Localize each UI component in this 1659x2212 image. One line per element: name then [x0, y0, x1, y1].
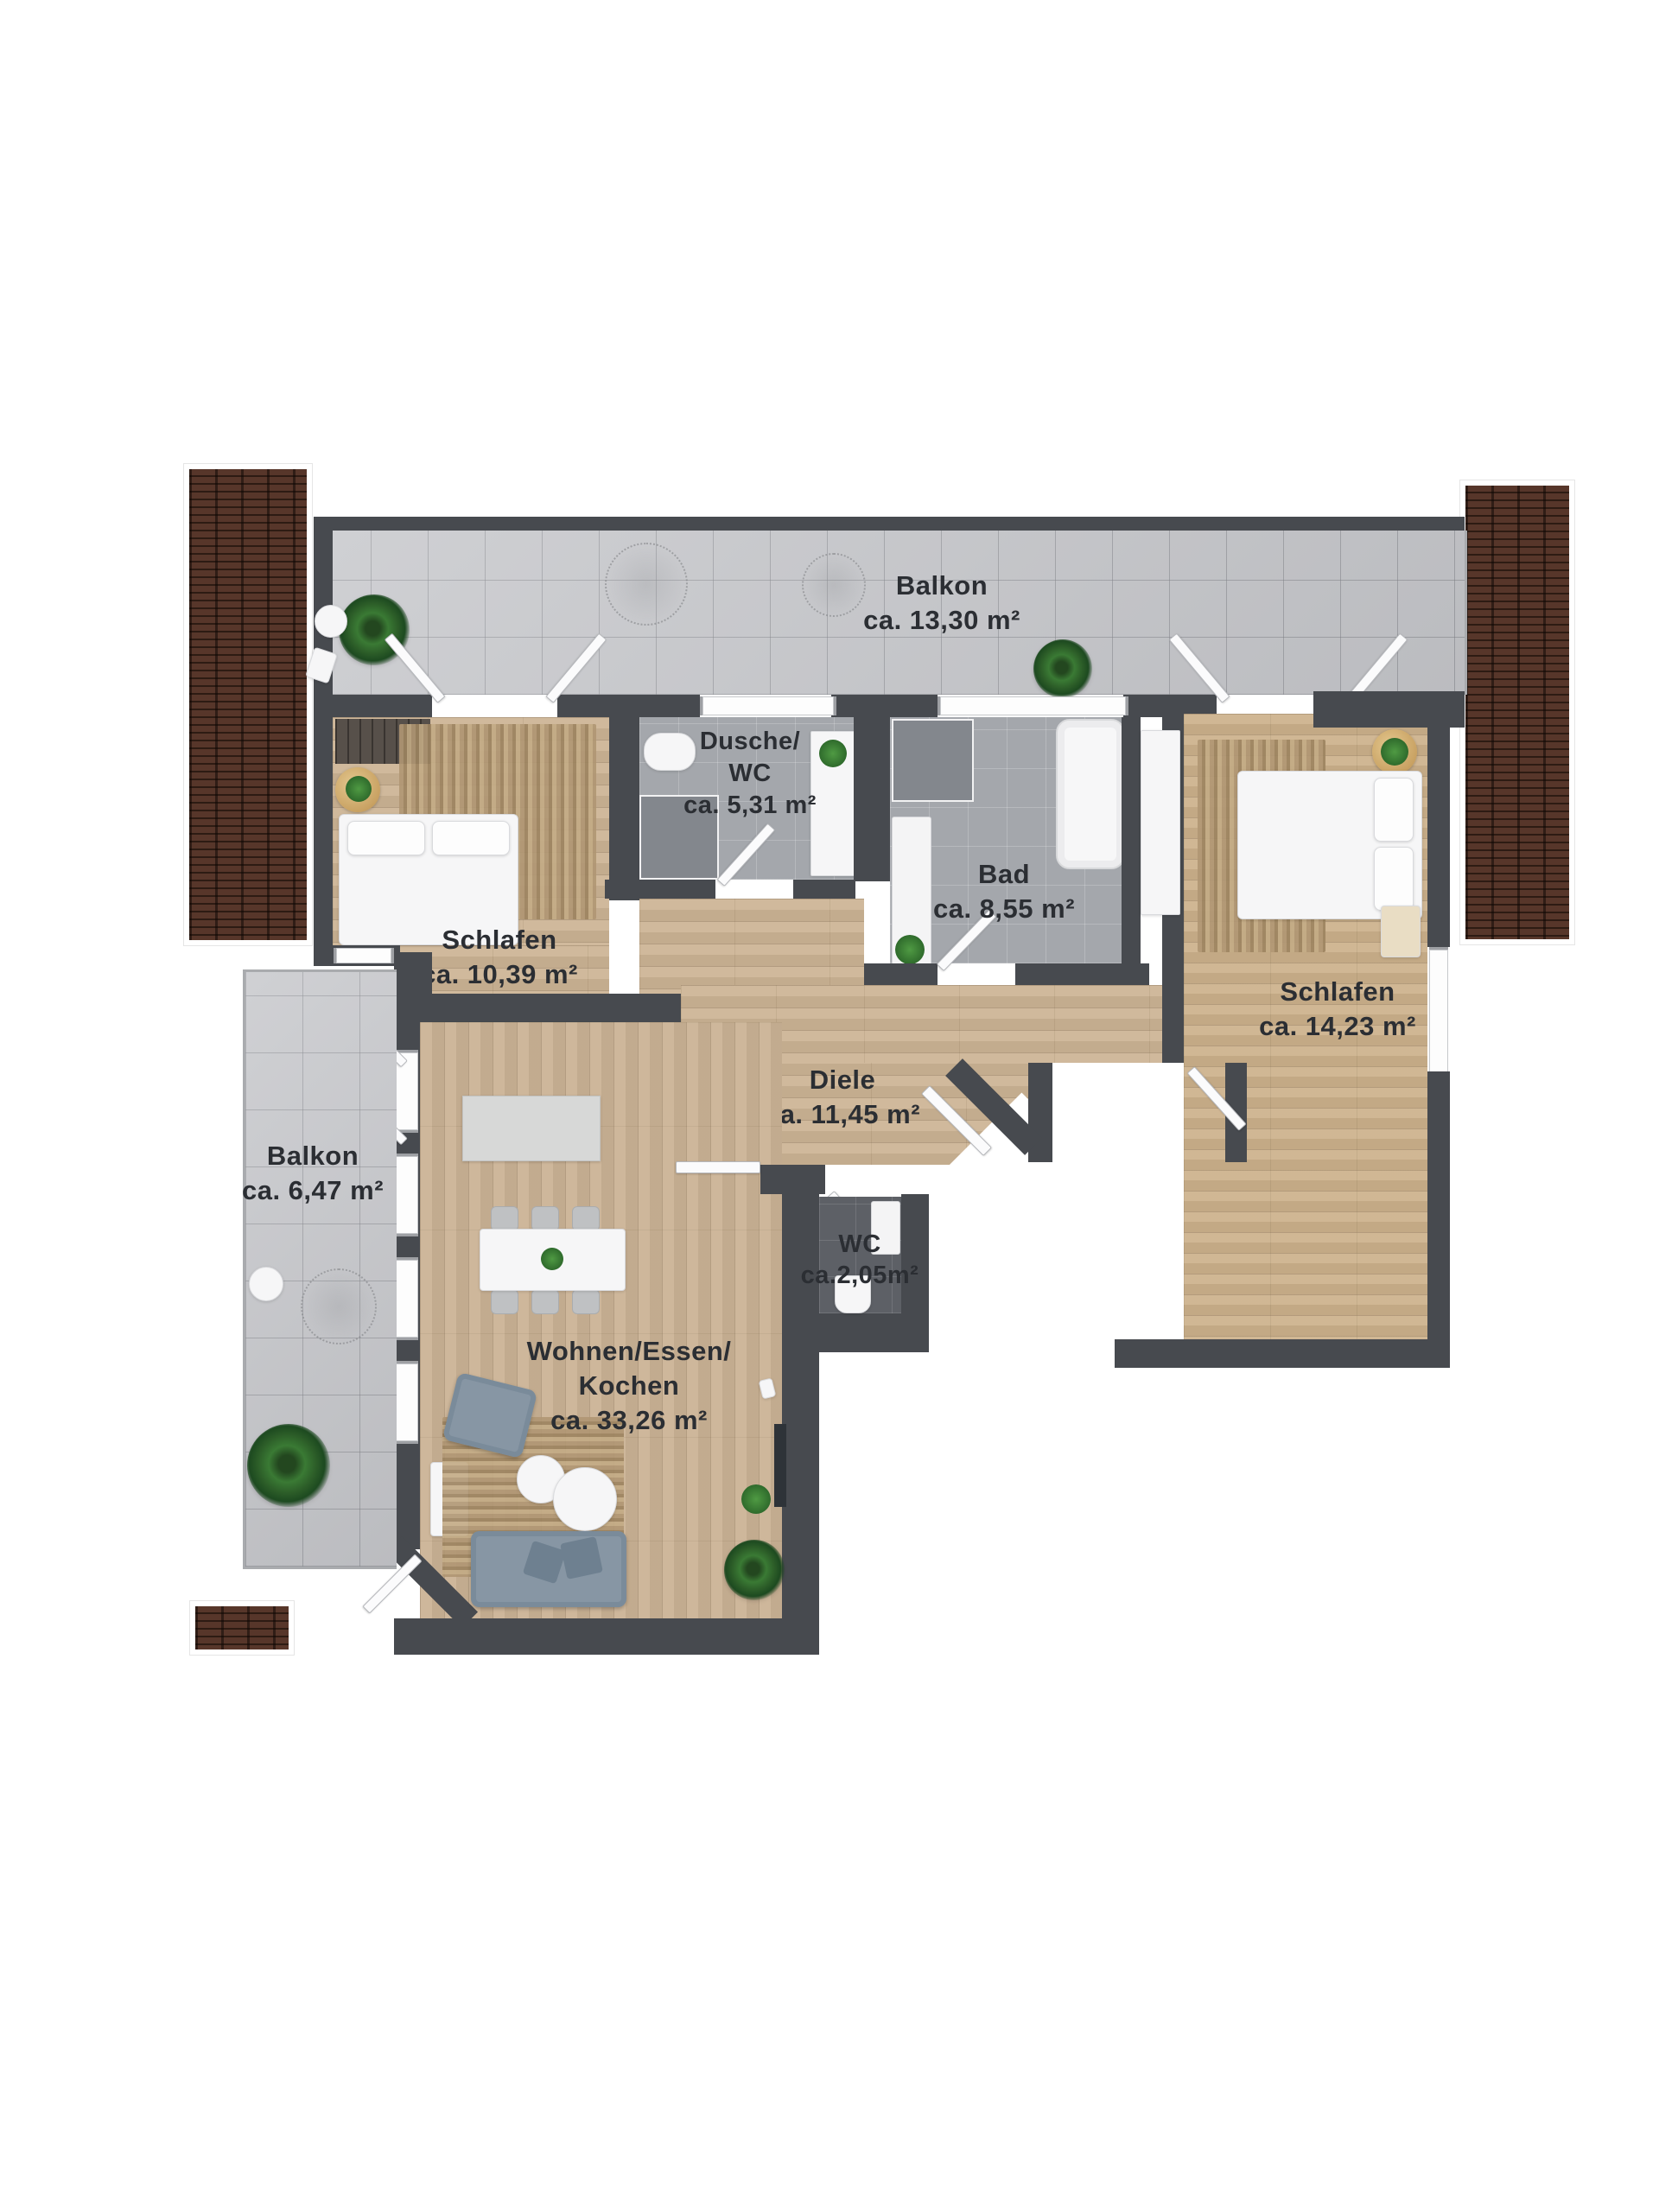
- room-name: Balkon: [183, 1139, 442, 1173]
- sketch-plant-icon: [301, 1268, 377, 1344]
- dining-chair: [572, 1206, 600, 1231]
- room-label-wc: WC ca.2,05m²: [730, 1229, 989, 1291]
- dining-chair: [572, 1289, 600, 1314]
- room-area: ca. 8,55 m²: [874, 892, 1134, 926]
- window-dusche: [700, 696, 836, 715]
- bathtub: [1056, 719, 1125, 869]
- room-label-schlafen-right: Schlafen ca. 14,23 m²: [1208, 975, 1467, 1044]
- roof-strip-bottom-left: [190, 1601, 294, 1655]
- wall-segment: [1427, 714, 1450, 947]
- plant-icon: [346, 776, 372, 802]
- monstera-plant-icon: [724, 1540, 785, 1600]
- room-area: ca. 13,30 m²: [812, 603, 1071, 638]
- bed-pillow: [347, 821, 425, 855]
- room-label-dusche-wc: Dusche/ WC ca. 5,31 m²: [620, 726, 880, 822]
- roof-strip-top-right: [1460, 480, 1574, 944]
- room-area: ca. 33,26 m²: [499, 1403, 759, 1438]
- plant-icon: [541, 1248, 563, 1270]
- coffee-table: [553, 1467, 617, 1531]
- plant-icon: [895, 935, 925, 964]
- wall-segment: [605, 880, 715, 899]
- window-bedroom-balcony: [334, 948, 394, 963]
- room-name: Bad: [874, 857, 1134, 892]
- diele-floor: [864, 985, 1162, 1063]
- wall-segment: [817, 1313, 929, 1352]
- door-opening-wc: [825, 1165, 899, 1194]
- wall-segment: [394, 1618, 819, 1655]
- kitchen-island: [462, 1096, 601, 1161]
- wall-segment: [864, 963, 938, 985]
- wall-segment: [1122, 717, 1141, 963]
- balcony-table: [249, 1267, 283, 1301]
- bed-pillow: [1374, 778, 1414, 842]
- floor-plan: Balkon ca. 13,30 m² Schlafen ca. 10,39 m…: [0, 0, 1659, 2212]
- palm-plant-icon: [1033, 639, 1092, 698]
- wall-segment: [793, 880, 855, 899]
- shower: [892, 719, 974, 802]
- room-name: WC: [620, 758, 880, 790]
- dining-chair: [531, 1206, 559, 1231]
- desk: [1381, 906, 1421, 957]
- plant-icon: [741, 1484, 771, 1514]
- window-living: [396, 1257, 418, 1340]
- dining-chair: [491, 1206, 518, 1231]
- room-name: Wohnen/Essen/: [499, 1334, 759, 1369]
- room-name: WC: [730, 1229, 989, 1260]
- room-label-balkon-top: Balkon ca. 13,30 m²: [812, 569, 1071, 638]
- plant-icon: [1381, 738, 1408, 766]
- room-area: ca. 14,23 m²: [1208, 1009, 1467, 1044]
- wall-segment: [314, 695, 432, 717]
- room-label-balkon-left: Balkon ca. 6,47 m²: [183, 1139, 442, 1208]
- diele-floor: [639, 899, 864, 995]
- balcony-table: [315, 605, 347, 638]
- wall-segment: [760, 1165, 825, 1194]
- window-living: [396, 1361, 418, 1444]
- room-name: Dusche/: [620, 726, 880, 758]
- room-label-wohnen: Wohnen/Essen/ Kochen ca. 33,26 m²: [499, 1334, 759, 1438]
- tv: [774, 1424, 786, 1507]
- wall-balcony-left: [314, 531, 333, 945]
- window-bad: [938, 696, 1128, 715]
- door-leaf-living-diele: [676, 1161, 760, 1173]
- wardrobe-white: [1141, 730, 1180, 915]
- palm-plant-icon: [247, 1424, 330, 1507]
- wall-balcony-top: [314, 517, 1465, 531]
- sofa-pillow: [560, 1536, 603, 1580]
- sketch-plant-icon: [605, 543, 688, 626]
- room-area: ca.2,05m²: [730, 1260, 989, 1291]
- dining-chair: [491, 1289, 518, 1314]
- wall-kitchen: [432, 994, 616, 1022]
- wall-segment: [1427, 1071, 1450, 1341]
- room-name: Balkon: [812, 569, 1071, 603]
- wall-segment: [831, 695, 938, 717]
- roof-strip-top-left: [184, 464, 312, 945]
- dining-chair: [531, 1289, 559, 1314]
- wall-segment: [394, 952, 432, 1022]
- wall-segment: [1015, 963, 1149, 985]
- room-label-bad: Bad ca. 8,55 m²: [874, 857, 1134, 926]
- room-area: ca. 6,47 m²: [183, 1173, 442, 1208]
- bed-pillow: [432, 821, 510, 855]
- room-area: ca. 5,31 m²: [620, 790, 880, 822]
- door-opening-bad: [938, 963, 1015, 985]
- wall-segment: [557, 695, 700, 717]
- bed-pillow: [1374, 847, 1414, 911]
- wall-segment: [1115, 1339, 1450, 1368]
- door-opening-bedroom-left: [432, 695, 557, 717]
- room-name: Kochen: [499, 1369, 759, 1403]
- room-name: Schlafen: [1208, 975, 1467, 1009]
